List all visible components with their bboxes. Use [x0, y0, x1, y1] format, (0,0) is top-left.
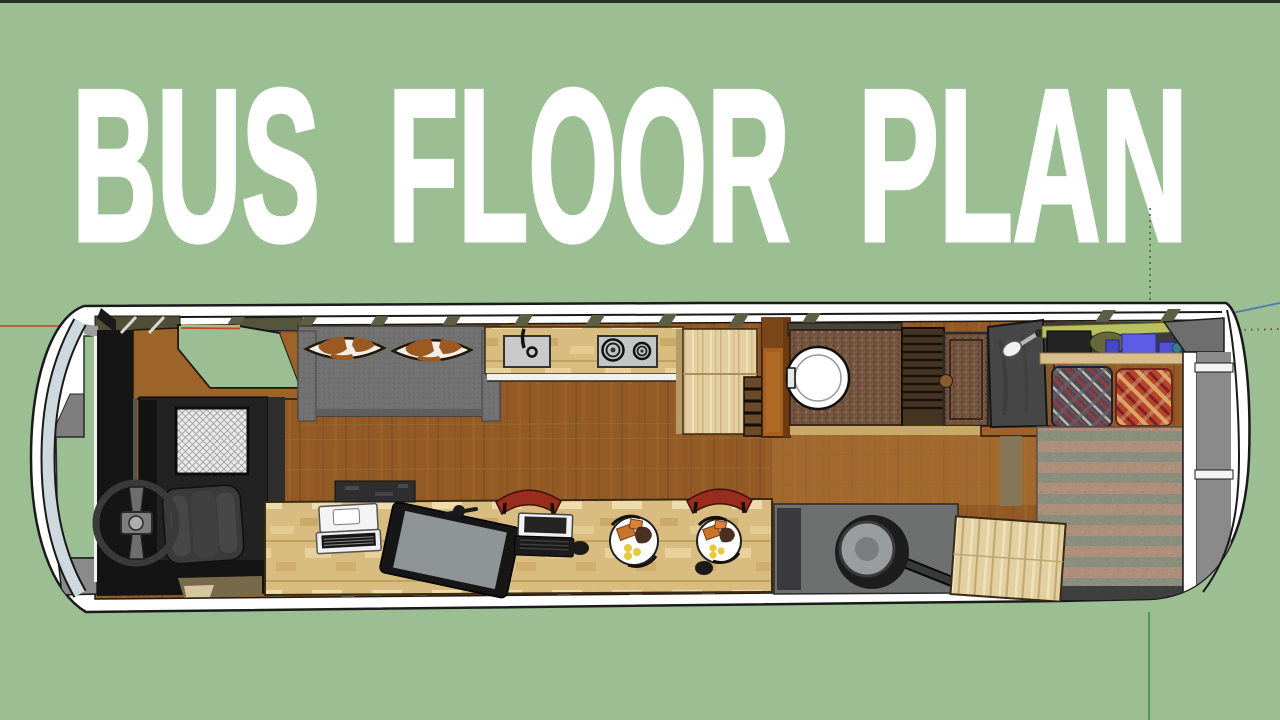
- svg-text:FLOOR: FLOOR: [388, 44, 790, 286]
- svg-text:BUS: BUS: [72, 44, 320, 286]
- svg-text:PLAN: PLAN: [858, 44, 1188, 286]
